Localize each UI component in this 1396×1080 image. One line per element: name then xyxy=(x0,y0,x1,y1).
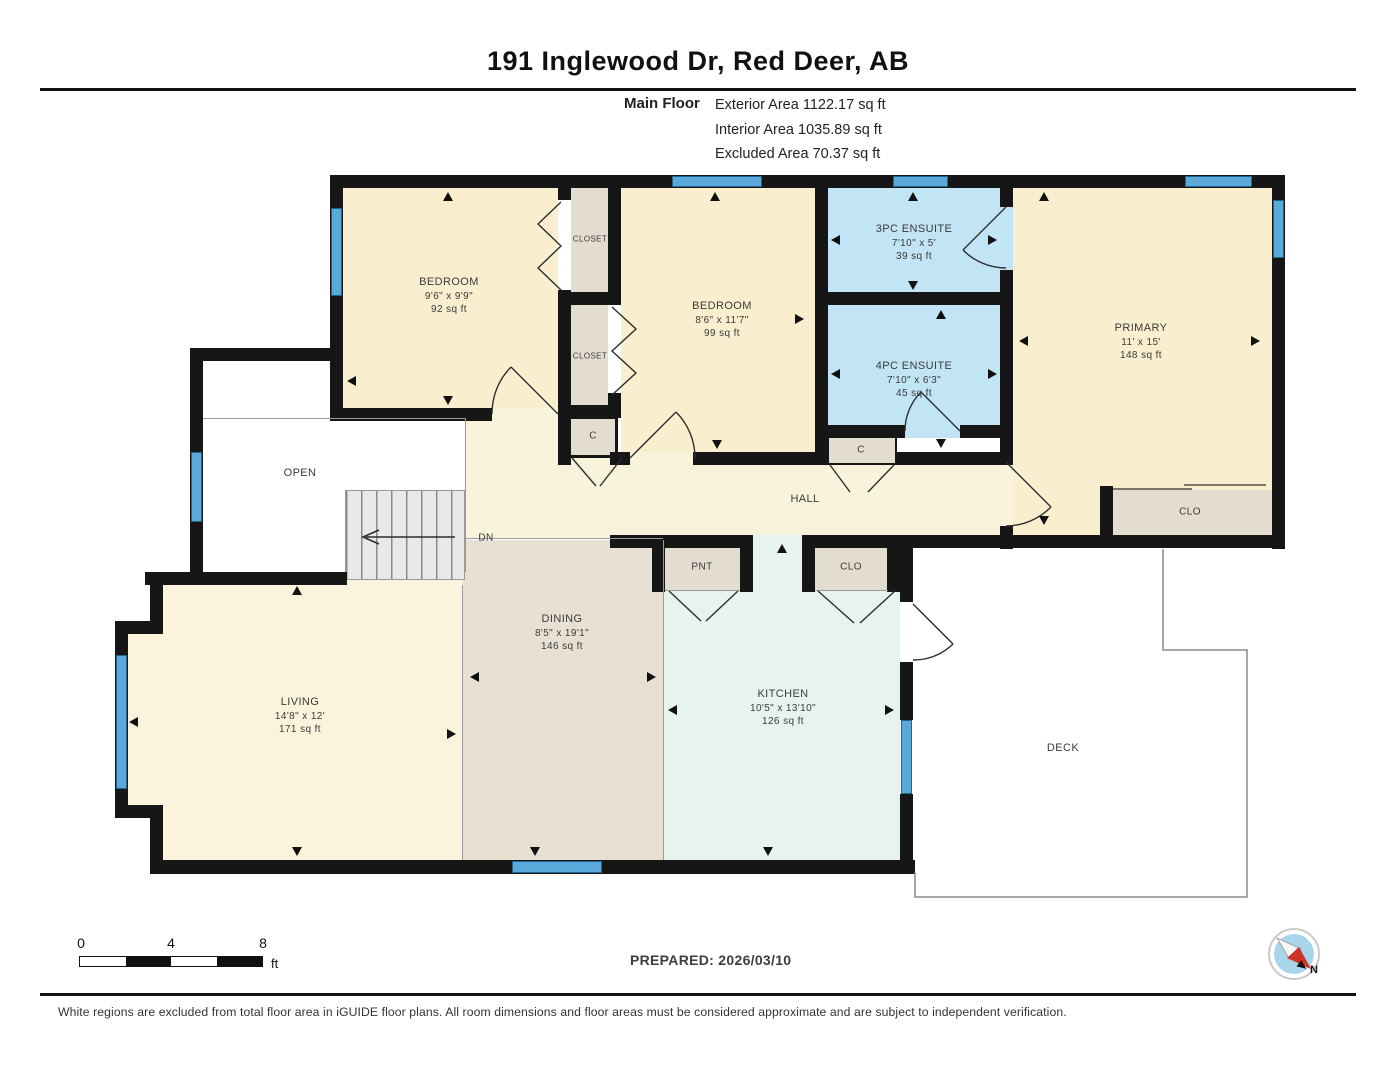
scale-segment xyxy=(80,957,126,966)
room-label-ensuite4: 4PC ENSUITE 7'10" x 6'3" 45 sq ft xyxy=(876,360,953,401)
direction-arrow-icon xyxy=(908,281,918,290)
deck-outline xyxy=(915,549,1247,897)
direction-arrow-icon xyxy=(988,369,997,379)
direction-arrow-icon xyxy=(447,729,456,739)
scale-tick-8: 8 xyxy=(259,935,267,951)
north-label: N xyxy=(1310,964,1318,976)
open-label: OPEN xyxy=(284,467,317,479)
closet-slider-icon xyxy=(1113,485,1266,489)
scale-unit: ft xyxy=(271,956,278,971)
small-closet-a-label: C xyxy=(589,431,597,442)
door-swing-icon xyxy=(492,207,1051,660)
bifold-door-icon xyxy=(538,202,636,395)
scale-tick-4: 4 xyxy=(167,935,175,951)
scale-segment xyxy=(217,957,263,966)
room-label-ensuite3: 3PC ENSUITE 7'10" x 5' 39 sq ft xyxy=(876,223,953,264)
direction-arrow-icon xyxy=(1039,192,1049,201)
plan-overlay xyxy=(0,0,1396,1080)
direction-arrow-icon xyxy=(831,235,840,245)
room-label-primary: PRIMARY 11' x 15' 148 sq ft xyxy=(1115,322,1168,363)
small-closet-b-label: C xyxy=(857,445,865,456)
direction-arrow-icon xyxy=(777,544,787,553)
closet-lower-label: CLOSET xyxy=(573,352,607,361)
direction-arrow-icon xyxy=(347,376,356,386)
hall-closet-label: CLO xyxy=(840,562,862,573)
scale-tick-0: 0 xyxy=(77,935,85,951)
direction-arrow-icon xyxy=(129,717,138,727)
direction-arrow-icon xyxy=(885,705,894,715)
direction-arrow-icon xyxy=(710,192,720,201)
room-label-bedroom1: BEDROOM 9'6" x 9'9" 92 sq ft xyxy=(419,276,479,317)
room-label-kitchen: KITCHEN 10'5" x 13'10" 126 sq ft xyxy=(750,688,816,729)
direction-arrow-icon xyxy=(1019,336,1028,346)
stairs-down-label: DN xyxy=(478,533,493,544)
scale-segment xyxy=(126,957,172,966)
direction-arrow-icon xyxy=(795,314,804,324)
disclaimer-text: White regions are excluded from total fl… xyxy=(58,1005,1067,1019)
pantry-label: PNT xyxy=(691,562,712,573)
prepared-date: PREPARED: 2026/03/10 xyxy=(630,952,791,968)
direction-arrow-icon xyxy=(988,235,997,245)
direction-arrow-icon xyxy=(1039,516,1049,525)
direction-arrow-icon xyxy=(647,672,656,682)
deck-label: DECK xyxy=(1047,742,1079,754)
stairs-direction-arrow-icon xyxy=(363,530,455,544)
hall-label: HALL xyxy=(790,493,819,505)
direction-arrow-icon xyxy=(908,192,918,201)
direction-arrow-icon xyxy=(530,847,540,856)
direction-arrow-icon xyxy=(443,396,453,405)
floorplan-page: 191 Inglewood Dr, Red Deer, AB Main Floo… xyxy=(0,0,1396,1080)
direction-arrow-icon xyxy=(668,705,677,715)
scale-segment xyxy=(171,957,217,966)
primary-closet-label: CLO xyxy=(1179,507,1201,518)
room-label-dining: DINING 8'5" x 19'1" 146 sq ft xyxy=(535,613,589,654)
direction-arrow-icon xyxy=(443,192,453,201)
direction-arrow-icon xyxy=(831,369,840,379)
direction-arrow-icon xyxy=(470,672,479,682)
direction-arrow-icon xyxy=(936,439,946,448)
footer-divider xyxy=(40,993,1356,996)
closet-upper-label: CLOSET xyxy=(573,235,607,244)
direction-arrow-icon xyxy=(292,586,302,595)
scale-bar xyxy=(79,956,263,967)
room-label-bedroom2: BEDROOM 8'6" x 11'7" 99 sq ft xyxy=(692,300,752,341)
room-label-living: LIVING 14'8" x 12' 171 sq ft xyxy=(275,696,325,737)
direction-arrow-icon xyxy=(763,847,773,856)
direction-arrow-icon xyxy=(1251,336,1260,346)
direction-arrow-icon xyxy=(936,310,946,319)
direction-arrow-icon xyxy=(292,847,302,856)
direction-arrow-icon xyxy=(712,440,722,449)
